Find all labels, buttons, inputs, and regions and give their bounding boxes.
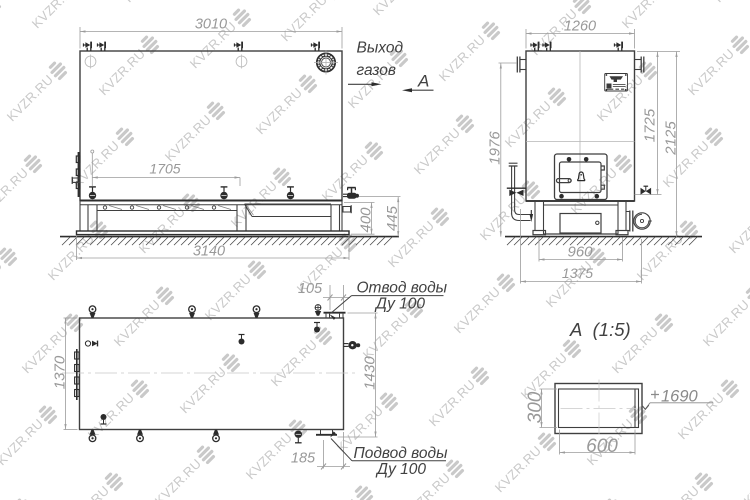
- svg-text:KVZR.RU: KVZR.RU: [568, 165, 620, 217]
- svg-text:KVZR.RU: KVZR.RU: [162, 112, 214, 164]
- svg-text:KVZR.RU: KVZR.RU: [152, 456, 204, 500]
- svg-text:KVZR.RU: KVZR.RU: [121, 0, 173, 5]
- svg-text:KVZR.RU: KVZR.RU: [60, 483, 112, 500]
- svg-text:1430: 1430: [361, 356, 378, 390]
- svg-text:2125: 2125: [662, 121, 679, 156]
- svg-text:KVZR.RU: KVZR.RU: [492, 443, 544, 495]
- svg-text:KVZR.RU: KVZR.RU: [4, 72, 56, 124]
- svg-text:KVZR.RU: KVZR.RU: [29, 0, 81, 31]
- svg-text:KVZR.RU: KVZR.RU: [502, 98, 554, 150]
- svg-text:KVZR.RU: KVZR.RU: [726, 204, 750, 256]
- svg-text:KVZR.RU: KVZR.RU: [451, 284, 503, 336]
- svg-text:KVZR.RU: KVZR.RU: [370, 0, 422, 18]
- svg-text:А (1:5): А (1:5): [569, 319, 631, 340]
- svg-text:газов: газов: [357, 62, 397, 79]
- svg-text:KVZR.RU: KVZR.RU: [477, 191, 529, 243]
- svg-text:KVZR.RU: KVZR.RU: [268, 337, 320, 389]
- svg-text:KVZR.RU: KVZR.RU: [0, 258, 5, 310]
- svg-text:KVZR.RU: KVZR.RU: [594, 72, 646, 124]
- svg-text:300: 300: [525, 391, 546, 423]
- svg-text:KVZR.RU: KVZR.RU: [711, 0, 750, 5]
- svg-text:Выход: Выход: [357, 40, 404, 57]
- svg-text:KVZR.RU: KVZR.RU: [202, 271, 254, 323]
- svg-text:3010: 3010: [195, 16, 227, 32]
- svg-text:960: 960: [567, 244, 593, 261]
- svg-text:445: 445: [384, 205, 401, 231]
- svg-text:KVZR.RU: KVZR.RU: [96, 46, 148, 98]
- svg-text:KVZR.RU: KVZR.RU: [411, 125, 463, 177]
- svg-text:А: А: [417, 72, 429, 91]
- svg-text:KVZR.RU: KVZR.RU: [436, 32, 488, 84]
- svg-text:KVZR.RU: KVZR.RU: [309, 496, 361, 500]
- svg-text:KVZR.RU: KVZR.RU: [177, 364, 229, 416]
- svg-text:KVZR.RU: KVZR.RU: [0, 416, 46, 468]
- svg-text:KVZR.RU: KVZR.RU: [243, 430, 295, 482]
- svg-text:1705: 1705: [149, 161, 180, 177]
- svg-text:KVZR.RU: KVZR.RU: [360, 310, 412, 362]
- svg-text:KVZR.RU: KVZR.RU: [0, 165, 31, 217]
- svg-text:600: 600: [586, 436, 618, 457]
- svg-text:1725: 1725: [642, 108, 659, 142]
- svg-text:KVZR.RU: KVZR.RU: [685, 46, 737, 98]
- svg-text:Ду 100: Ду 100: [375, 461, 426, 478]
- svg-text:Отвод воды: Отвод воды: [357, 280, 448, 297]
- svg-text:KVZR.RU: KVZR.RU: [253, 85, 305, 137]
- svg-text:1260: 1260: [564, 18, 596, 34]
- svg-text:KVZR.RU: KVZR.RU: [650, 483, 702, 500]
- svg-text:3140: 3140: [193, 243, 225, 259]
- svg-text:KVZR.RU: KVZR.RU: [700, 297, 750, 349]
- svg-text:1370: 1370: [51, 355, 68, 389]
- svg-text:KVZR.RU: KVZR.RU: [136, 204, 188, 256]
- svg-text:105: 105: [298, 281, 323, 297]
- svg-text:KVZR.RU: KVZR.RU: [111, 297, 163, 349]
- svg-text:KVZR.RU: KVZR.RU: [278, 0, 330, 44]
- svg-text:Ду 100: Ду 100: [374, 296, 425, 313]
- svg-text:1976: 1976: [487, 131, 504, 165]
- svg-text:Подвод воды: Подвод воды: [354, 445, 449, 462]
- svg-text:1375: 1375: [562, 265, 593, 281]
- svg-text:400: 400: [357, 207, 374, 233]
- svg-text:KVZR.RU: KVZR.RU: [741, 456, 750, 500]
- svg-text:KVZR.RU: KVZR.RU: [619, 0, 671, 31]
- svg-text:KVZR.RU: KVZR.RU: [426, 377, 478, 429]
- svg-text:185: 185: [291, 451, 316, 467]
